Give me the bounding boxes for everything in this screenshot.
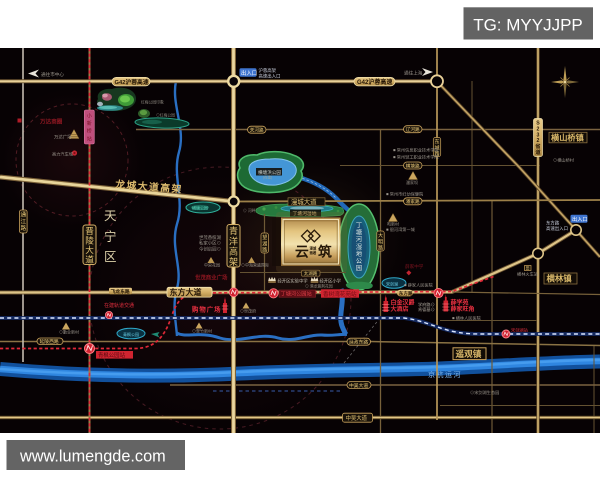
svg-text:道: 道 — [535, 148, 541, 156]
svg-text:高: 高 — [229, 246, 238, 257]
svg-text:横林火车站: 横林火车站 — [517, 271, 538, 278]
svg-text:湿: 湿 — [356, 243, 362, 251]
svg-text:今创启园⊙: 今创启园⊙ — [199, 246, 221, 253]
svg-text:肯德基⊙: 肯德基⊙ — [418, 306, 435, 313]
svg-text:薛学苑: 薛学苑 — [451, 299, 469, 307]
svg-text:(在建): (在建) — [263, 175, 272, 180]
svg-text:高力汽车城: 高力汽车城 — [52, 151, 74, 158]
svg-text:高速出入口: 高速出入口 — [546, 225, 568, 232]
svg-text:薛家中学: 薛家中学 — [405, 263, 424, 270]
svg-text:陵: 陵 — [85, 235, 94, 245]
svg-text:高速出入口: 高速出入口 — [259, 72, 281, 79]
svg-text:京杭运河: 京杭运河 — [428, 370, 462, 379]
svg-text:出入口: 出入口 — [241, 69, 257, 77]
svg-text:小: 小 — [87, 113, 92, 120]
svg-text:辽河路: 辽河路 — [406, 126, 420, 133]
svg-text:www.lumengde.com: www.lumengde.com — [19, 448, 166, 466]
svg-text:站: 站 — [87, 135, 92, 142]
svg-text:红梅公园印象: 红梅公园印象 — [141, 100, 164, 105]
svg-text:⊙宋剑湖生态园: ⊙宋剑湖生态园 — [470, 389, 499, 396]
svg-text:香树湾花苑站: 香树湾花苑站 — [323, 290, 357, 298]
svg-text:路: 路 — [262, 247, 267, 254]
svg-text:洋: 洋 — [229, 235, 238, 246]
svg-text:横塘公园: 横塘公园 — [192, 205, 208, 211]
svg-text:架: 架 — [229, 257, 238, 267]
svg-text:宋剑湖: 宋剑湖 — [386, 281, 398, 287]
svg-text:关河路: 关河路 — [250, 127, 264, 134]
svg-text:路: 路 — [20, 224, 26, 232]
svg-text:晋: 晋 — [85, 226, 94, 236]
svg-text:桥: 桥 — [87, 128, 92, 135]
svg-text:飞龙东路: 飞龙东路 — [111, 288, 130, 295]
svg-text:雅著: 雅著 — [310, 250, 317, 255]
svg-text:漫城: 漫城 — [310, 246, 317, 251]
svg-text:东方大道: 东方大道 — [170, 287, 202, 297]
svg-text:购物广场: 购物广场 — [192, 305, 222, 314]
svg-text:通往上海: 通往上海 — [404, 69, 423, 76]
svg-text:横山桥镇: 横山桥镇 — [551, 133, 585, 143]
svg-text:地: 地 — [356, 250, 362, 258]
svg-text:区: 区 — [104, 250, 117, 264]
svg-text:■ 常州市妇幼保健院: ■ 常州市妇幼保健院 — [386, 191, 424, 198]
svg-text:青: 青 — [229, 225, 238, 236]
svg-text:云: 云 — [295, 245, 309, 260]
svg-text:河: 河 — [356, 236, 362, 244]
svg-text:■ 常州信息职业技术学院: ■ 常州信息职业技术学院 — [393, 147, 439, 154]
svg-text:⊙横山桥村: ⊙横山桥村 — [553, 157, 575, 164]
svg-text:万达广场: 万达广场 — [54, 134, 72, 141]
svg-text:■ 薛家人民医院: ■ 薛家人民医院 — [404, 282, 434, 289]
svg-text:延陵西路: 延陵西路 — [40, 338, 59, 345]
svg-text:青枫公园站: 青枫公园站 — [98, 351, 126, 359]
svg-text:在建轨道交通: 在建轨道交通 — [104, 302, 134, 309]
svg-text:筑: 筑 — [317, 244, 332, 260]
svg-text:⊙中海荣盛国际: ⊙中海荣盛国际 — [241, 262, 269, 268]
svg-text:G42沪蓉高速: G42沪蓉高速 — [115, 78, 149, 86]
svg-text:横塘路: 横塘路 — [406, 162, 420, 169]
svg-text:经开区小学: 经开区小学 — [320, 278, 342, 285]
svg-text:通: 通 — [20, 211, 26, 219]
svg-text:中吴大道: 中吴大道 — [346, 414, 368, 422]
svg-text:遥观镇: 遥观镇 — [456, 348, 482, 359]
svg-text:东方路: 东方路 — [399, 290, 413, 297]
svg-text:道: 道 — [85, 253, 94, 264]
svg-text:省: 省 — [534, 142, 541, 150]
svg-text:青枫公园: 青枫公园 — [123, 331, 139, 337]
svg-text:经开区实验中学: 经开区实验中学 — [278, 278, 309, 285]
svg-text:东: 东 — [434, 139, 439, 146]
svg-text:丁: 丁 — [356, 223, 362, 230]
svg-text:⊙ 港龙紫荆花园: ⊙ 港龙紫荆花园 — [305, 284, 333, 289]
svg-text:中央花园: 中央花园 — [204, 262, 220, 268]
svg-text:■ 银河湾第一城: ■ 银河湾第一城 — [386, 226, 416, 233]
svg-text:塘: 塘 — [356, 229, 362, 237]
svg-text:鸣新村: 鸣新村 — [387, 221, 399, 227]
svg-text:TG: MYYJJPP: TG: MYYJJPP — [473, 16, 583, 35]
svg-text:延政东路: 延政东路 — [349, 339, 368, 346]
svg-text:园: 园 — [356, 265, 362, 272]
svg-text:明: 明 — [378, 239, 383, 245]
svg-text:公: 公 — [356, 258, 362, 265]
svg-text:■ 常州轻工职业技术学院: ■ 常州轻工职业技术学院 — [393, 154, 439, 161]
svg-text:丁塘河公园站: 丁塘河公园站 — [281, 290, 312, 298]
svg-text:大: 大 — [378, 232, 383, 239]
svg-text:横林镇: 横林镇 — [547, 274, 573, 284]
svg-text:白金汉爵: 白金汉爵 — [391, 299, 415, 307]
svg-text:潘家坝: 潘家坝 — [406, 179, 418, 185]
svg-text:新: 新 — [87, 120, 92, 127]
svg-text:世茂商业广场: 世茂商业广场 — [195, 274, 228, 282]
svg-text:G42沪蓉高速: G42沪蓉高速 — [357, 78, 392, 86]
svg-text:田: 田 — [526, 267, 530, 271]
svg-text:私家小区⊙: 私家小区⊙ — [199, 240, 221, 247]
svg-text:望: 望 — [262, 234, 267, 241]
svg-text:薛家旺角: 薛家旺角 — [451, 305, 475, 313]
svg-text:通往市中心: 通往市中心 — [41, 71, 64, 78]
svg-text:大: 大 — [85, 244, 94, 255]
svg-text:江: 江 — [20, 218, 26, 225]
svg-text:⊙世茂府: ⊙世茂府 — [240, 308, 256, 314]
svg-text:万达商圈: 万达商圈 — [39, 118, 63, 126]
svg-text:⊙红梅公园: ⊙红梅公园 — [156, 113, 175, 118]
svg-text:中吴大道: 中吴大道 — [349, 382, 368, 389]
svg-text:漫城大道: 漫城大道 — [291, 197, 317, 206]
svg-text:宋剑湖站: 宋剑湖站 — [511, 327, 528, 334]
svg-text:湖: 湖 — [262, 240, 267, 247]
svg-text:⊙翠竹新村: ⊙翠竹新村 — [192, 328, 212, 334]
svg-text:宁: 宁 — [104, 229, 117, 244]
svg-text:■ 横林人民医院: ■ 横林人民医院 — [452, 315, 482, 322]
svg-text:出入口: 出入口 — [572, 215, 588, 223]
svg-text:潘家路: 潘家路 — [406, 198, 420, 205]
svg-text:大酒店: 大酒店 — [391, 305, 409, 313]
svg-text:⊙勤业新村: ⊙勤业新村 — [59, 329, 79, 335]
svg-text:天: 天 — [104, 209, 117, 223]
svg-text:路: 路 — [378, 245, 383, 252]
